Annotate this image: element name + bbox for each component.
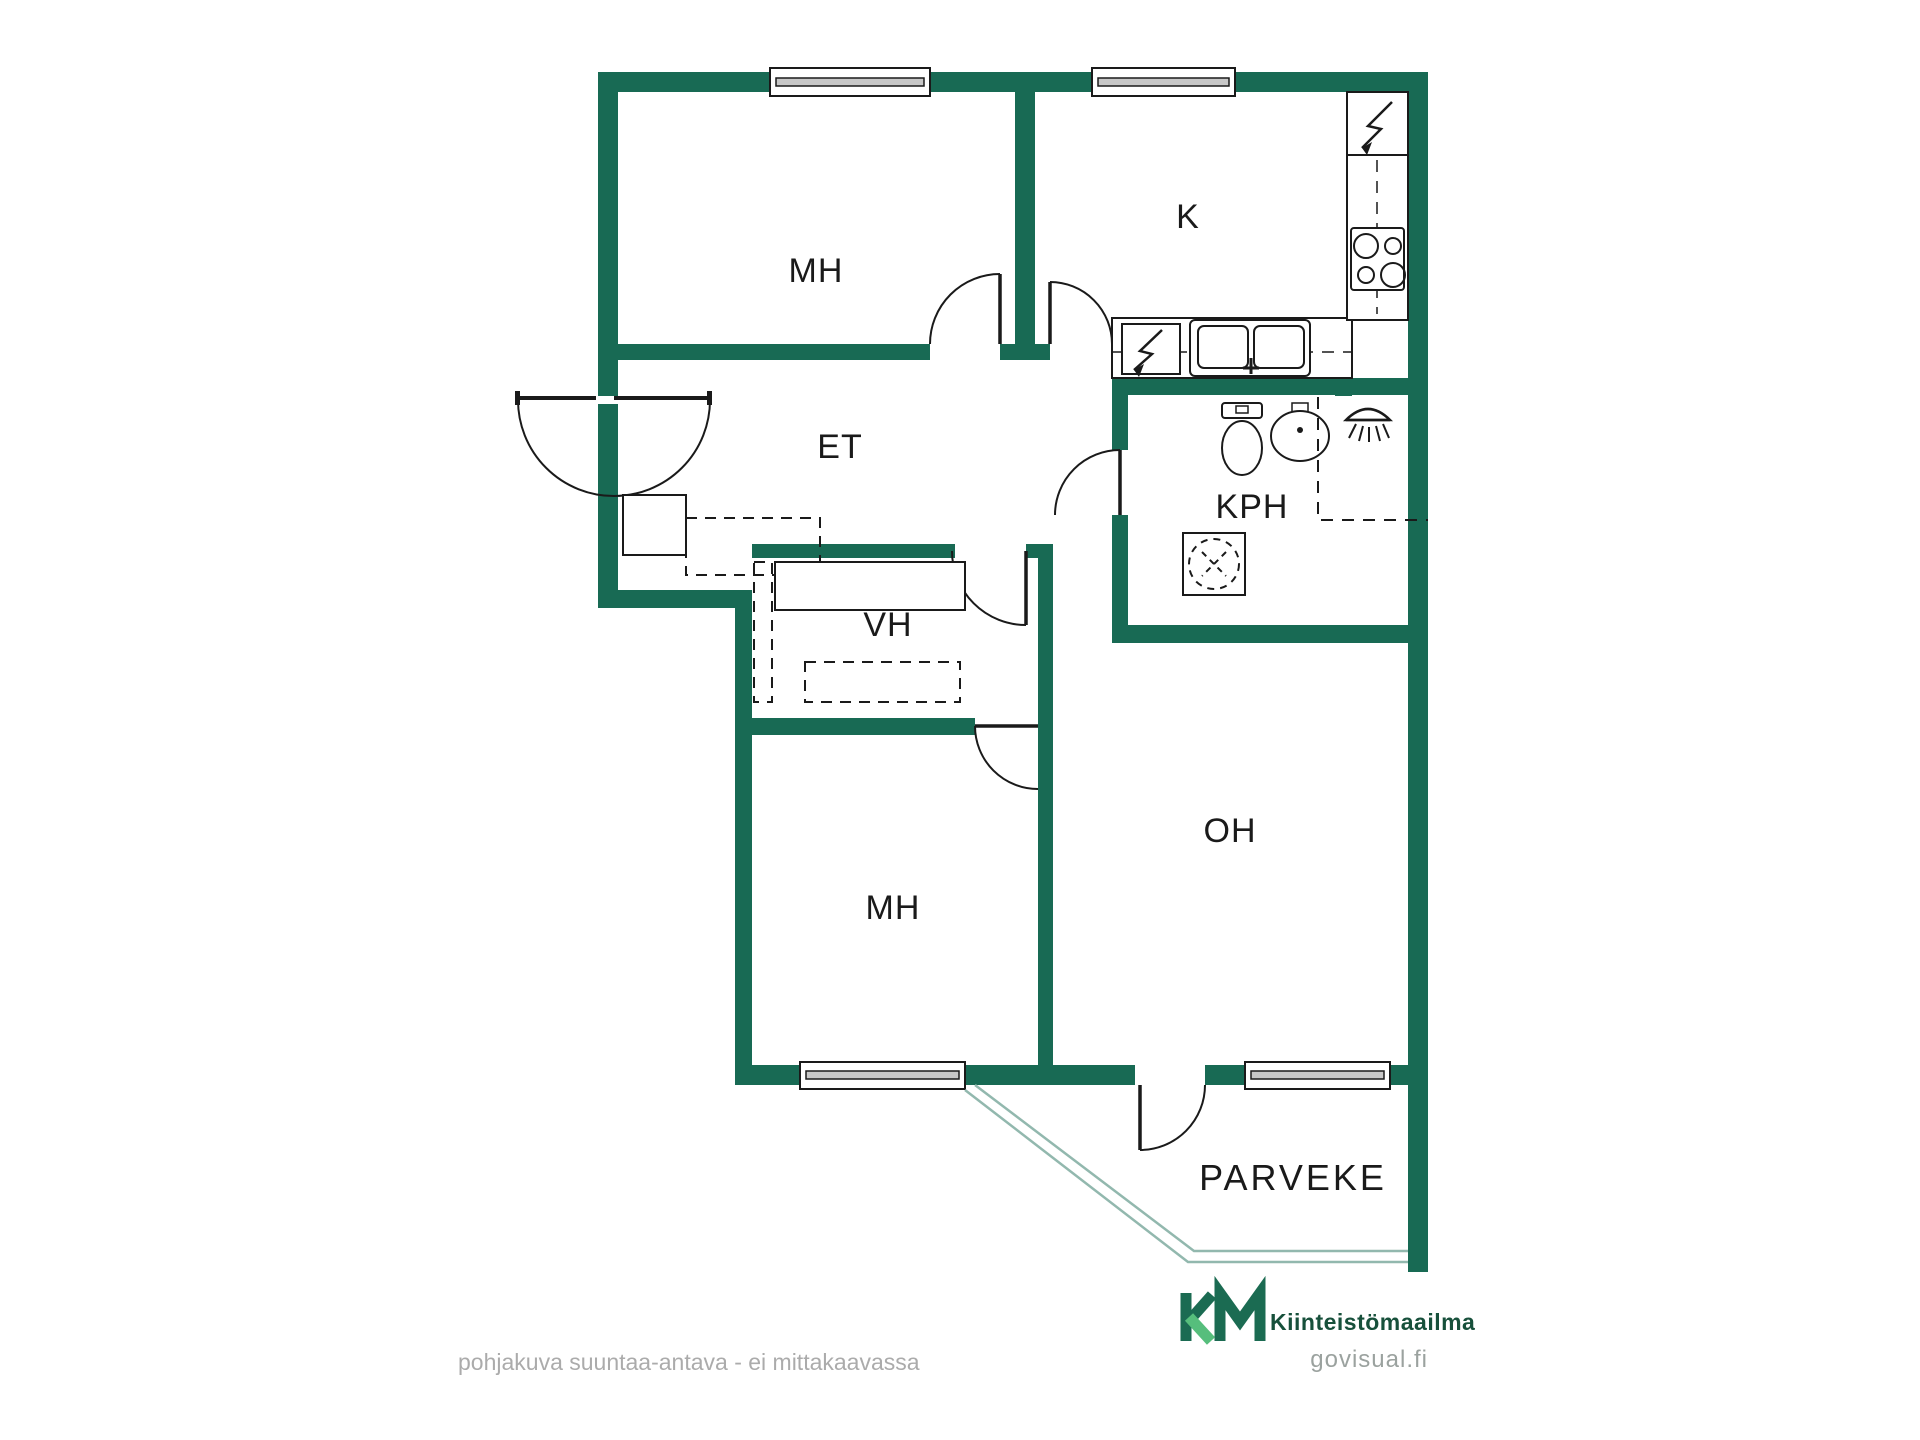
wall [735, 718, 975, 735]
door-arc [930, 274, 1000, 344]
wall [735, 735, 752, 1085]
disclaimer-text: pohjakuva suuntaa-antava - ei mittakaava… [458, 1349, 920, 1375]
doors [515, 274, 1205, 1150]
wall [1235, 72, 1428, 92]
door-arc [1050, 282, 1112, 344]
wall [1390, 1065, 1428, 1085]
watermark-text: govisual.fi [1310, 1346, 1428, 1373]
wall [598, 72, 770, 92]
bedroom1-door [930, 274, 1000, 344]
room-label-bedroom2: MH [866, 889, 921, 927]
closet-side-dashed [754, 562, 772, 702]
km-logo: Kiinteistömaailma govisual.fi [1186, 1293, 1475, 1373]
window-kitchen [1092, 68, 1235, 96]
dishwasher-icon [1122, 324, 1180, 377]
wall [1112, 625, 1428, 643]
bedroom2-door [975, 726, 1038, 789]
room-label-closet: VH [863, 606, 912, 644]
wall [598, 590, 752, 608]
window-livingroom [1245, 1062, 1390, 1089]
wall [1335, 378, 1428, 395]
room-label-bedroom1: MH [789, 252, 844, 290]
wall [1015, 92, 1035, 344]
wall [1408, 72, 1428, 1272]
wall [930, 72, 1092, 92]
wall [1038, 545, 1053, 718]
wall [1205, 1065, 1245, 1085]
km-logo-text: Kiinteistömaailma [1270, 1309, 1475, 1335]
room-label-entry: ET [817, 428, 862, 466]
closet-shelf [775, 562, 965, 610]
wall [598, 360, 618, 396]
wall [1112, 378, 1352, 395]
room-label-bathroom: KPH [1216, 488, 1289, 526]
door-arc [975, 726, 1038, 789]
wall [735, 590, 752, 735]
wall [1112, 395, 1128, 450]
entry-wardrobe [623, 495, 686, 555]
window-bedroom1 [770, 68, 930, 96]
wall [965, 1065, 1135, 1085]
bathroom-door [1055, 450, 1120, 515]
toilet-icon [1222, 403, 1262, 475]
room-label-livingroom: OH [1204, 812, 1257, 850]
door-arc [1140, 1085, 1205, 1150]
wall [598, 404, 618, 608]
balcony-door [1140, 1085, 1205, 1150]
washing-machine-icon [1183, 533, 1245, 595]
floor-plan-page: MH K ET KPH VH MH OH PARVEKE pohjakuva s… [0, 0, 1920, 1440]
stove-icon [1351, 228, 1405, 290]
window-bedroom2 [800, 1062, 965, 1089]
fridge-icon [1347, 92, 1408, 155]
wall [752, 544, 955, 558]
wall [735, 1065, 800, 1085]
sink-icon [1190, 320, 1310, 376]
walls [598, 72, 1428, 1272]
washbasin-icon [1271, 403, 1329, 461]
wall [1112, 515, 1128, 627]
km-logo-mark [1186, 1293, 1260, 1341]
wall [598, 344, 930, 360]
wall [1038, 718, 1053, 1085]
room-label-kitchen: K [1176, 198, 1200, 236]
door-arc [1055, 450, 1120, 515]
closet-shelf-dashed [805, 662, 960, 702]
room-label-balcony: PARVEKE [1199, 1157, 1387, 1198]
shower-icon [1346, 409, 1390, 442]
kitchen-door [1050, 282, 1112, 344]
floor-plan: MH K ET KPH VH MH OH PARVEKE pohjakuva s… [0, 0, 1920, 1440]
wall [1000, 344, 1050, 360]
kitchen-fixtures [1112, 92, 1408, 378]
wall [598, 92, 618, 360]
